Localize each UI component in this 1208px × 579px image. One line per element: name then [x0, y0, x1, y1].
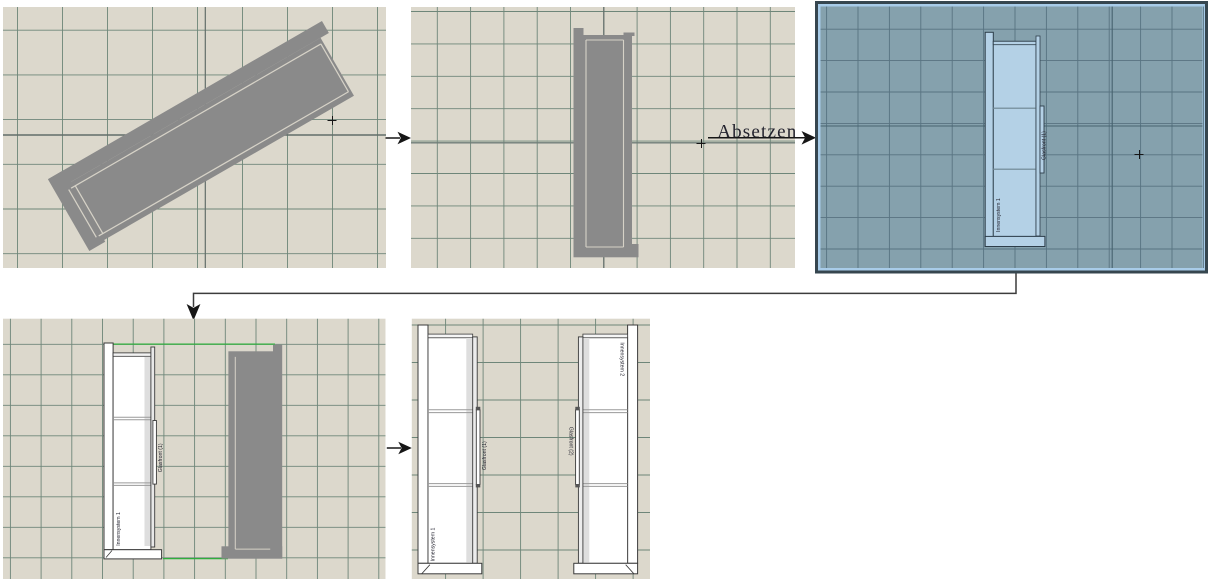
svg-text:Innensystem 1: Innensystem 1	[116, 512, 122, 546]
svg-text:Glasfront (2): Glasfront (2)	[568, 427, 574, 456]
svg-text:Glasfront (1): Glasfront (1)	[158, 443, 164, 472]
svg-text:Innensystem 1: Innensystem 1	[996, 198, 1002, 232]
svg-text:Glasfront (1): Glasfront (1)	[482, 441, 488, 470]
svg-text:Absetzen: Absetzen	[717, 122, 797, 143]
svg-text:Glasfront (1): Glasfront (1)	[1042, 131, 1048, 160]
svg-text:Innensystem 1: Innensystem 1	[431, 528, 437, 562]
svg-text:Innensystem 2: Innensystem 2	[619, 342, 625, 376]
